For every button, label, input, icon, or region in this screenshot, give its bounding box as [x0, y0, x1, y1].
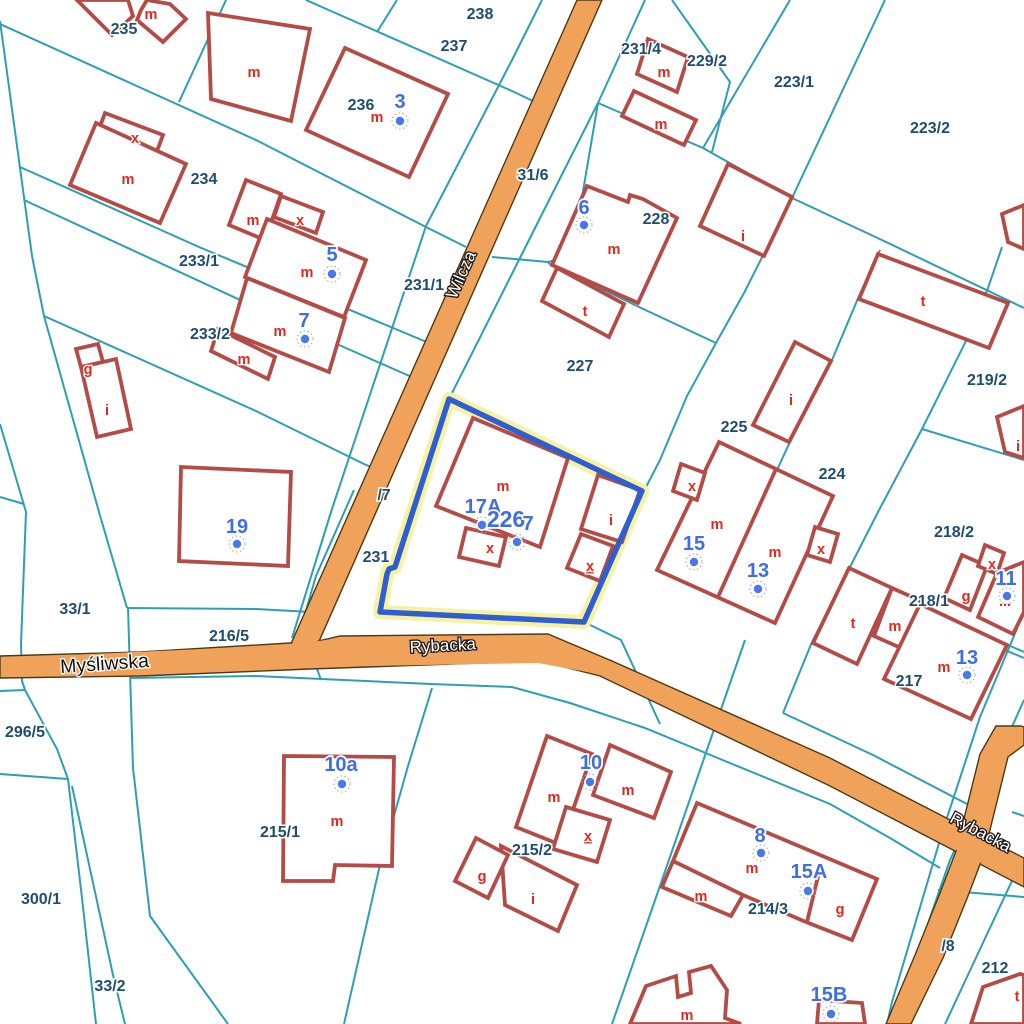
svg-text:m: m [301, 265, 314, 281]
svg-text:15: 15 [683, 533, 705, 555]
svg-text:x: x [817, 542, 825, 558]
svg-text:m: m [695, 889, 708, 905]
svg-text:i: i [741, 229, 745, 245]
svg-text:33/1: 33/1 [59, 601, 90, 618]
svg-text:238: 238 [467, 6, 494, 23]
svg-text:m: m [238, 352, 251, 368]
svg-text:i: i [1016, 439, 1020, 455]
svg-text:33/2: 33/2 [94, 978, 125, 995]
svg-text:g: g [84, 362, 93, 378]
svg-text:223/1: 223/1 [774, 74, 814, 91]
svg-text:228: 228 [643, 211, 670, 228]
svg-text:x: x [586, 559, 594, 575]
svg-text:i: i [609, 513, 613, 529]
svg-text:237: 237 [441, 38, 468, 55]
svg-text:225: 225 [721, 419, 748, 436]
svg-text:215/1: 215/1 [260, 824, 300, 841]
svg-text:m: m [622, 783, 635, 799]
svg-text:x: x [688, 479, 696, 495]
svg-text:235: 235 [111, 21, 138, 38]
svg-text:229/2: 229/2 [687, 53, 727, 70]
svg-text:217: 217 [896, 673, 923, 690]
svg-text:t: t [1015, 989, 1020, 1005]
svg-text:t: t [921, 294, 926, 310]
svg-text:Rybacka: Rybacka [409, 634, 477, 656]
svg-text:m: m [746, 861, 759, 877]
svg-text:m: m [248, 65, 261, 81]
svg-text:m: m [247, 213, 260, 229]
svg-text:g: g [962, 589, 971, 605]
svg-text:212: 212 [982, 960, 1009, 977]
svg-text:x: x [296, 213, 304, 229]
svg-text:19: 19 [226, 516, 248, 538]
svg-text:m: m [681, 1008, 694, 1024]
svg-text:234: 234 [191, 171, 218, 188]
svg-text:i: i [531, 892, 535, 908]
svg-text:223/2: 223/2 [910, 120, 950, 137]
svg-text:m: m [658, 65, 671, 81]
svg-text:224: 224 [819, 466, 846, 483]
svg-text:m: m [145, 7, 158, 23]
svg-text:m: m [122, 172, 135, 188]
svg-text:m: m [548, 790, 561, 806]
svg-text:m: m [608, 242, 621, 258]
svg-text:7: 7 [522, 513, 533, 535]
svg-text:6: 6 [578, 197, 589, 219]
svg-text:215/2: 215/2 [512, 842, 552, 859]
svg-text:13: 13 [956, 647, 978, 669]
svg-text:216/5: 216/5 [209, 628, 249, 645]
svg-text:i: i [105, 403, 109, 419]
svg-text:231: 231 [363, 549, 390, 566]
svg-text:m: m [711, 517, 724, 533]
svg-text:m: m [497, 479, 510, 495]
svg-text:231/1: 231/1 [404, 277, 444, 294]
svg-text:10: 10 [580, 752, 602, 774]
svg-text:231/4: 231/4 [621, 41, 661, 58]
svg-text:15B: 15B [811, 984, 848, 1006]
svg-text:m: m [889, 619, 902, 635]
svg-text:/7: /7 [377, 487, 390, 504]
svg-text:8: 8 [754, 825, 765, 847]
svg-text:m: m [769, 545, 782, 561]
svg-text:m: m [655, 117, 668, 133]
svg-text:/8: /8 [941, 938, 954, 955]
svg-text:3: 3 [394, 91, 405, 113]
svg-text:t: t [851, 616, 856, 632]
svg-text:10a: 10a [324, 754, 358, 776]
svg-text:214/3: 214/3 [748, 901, 788, 918]
svg-text:i: i [789, 393, 793, 409]
svg-text:219/2: 219/2 [967, 372, 1007, 389]
svg-text:m: m [274, 324, 287, 340]
svg-text:5: 5 [326, 244, 337, 266]
svg-text:300/1: 300/1 [21, 891, 61, 908]
svg-text:296/5: 296/5 [5, 724, 45, 741]
svg-text:218/2: 218/2 [934, 524, 974, 541]
svg-text:x: x [584, 829, 592, 845]
svg-text:m: m [331, 814, 344, 830]
svg-text:227: 227 [567, 358, 594, 375]
svg-text:t: t [583, 304, 588, 320]
svg-text:11: 11 [995, 568, 1016, 590]
svg-text:x: x [131, 131, 139, 147]
svg-text:m: m [938, 660, 951, 676]
svg-text:226: 226 [487, 506, 525, 532]
svg-text:7: 7 [298, 310, 309, 332]
svg-text:31/6: 31/6 [517, 167, 548, 184]
svg-text:233/1: 233/1 [179, 253, 219, 270]
svg-text:233/2: 233/2 [190, 326, 230, 343]
svg-text:g: g [478, 869, 487, 885]
svg-text:m: m [371, 110, 384, 126]
svg-text:x: x [486, 541, 494, 557]
svg-text:g: g [836, 902, 845, 918]
svg-text:13: 13 [747, 560, 769, 582]
svg-text:218/1: 218/1 [909, 593, 949, 610]
svg-text:15A: 15A [791, 861, 828, 883]
